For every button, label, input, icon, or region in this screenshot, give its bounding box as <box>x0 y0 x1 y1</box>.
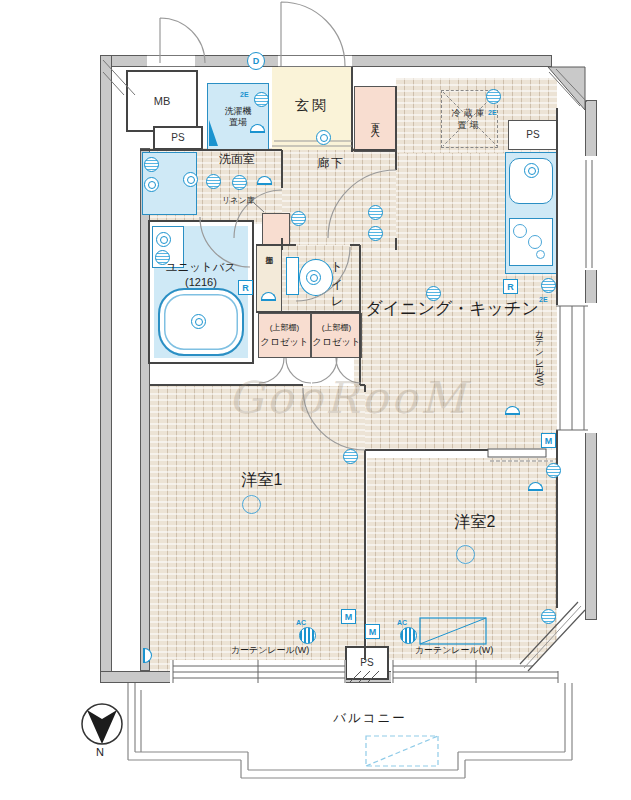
room2-ac-tag: AC <box>397 619 407 626</box>
entrance-threshold <box>278 55 352 67</box>
bath-faucet-symbol <box>156 232 171 247</box>
bottom-window-1 <box>170 660 346 683</box>
sink-faucet-symbol <box>524 163 539 178</box>
washer-faucet-symbol <box>254 92 269 107</box>
curtain-rail-room2-label: カーテンレール(W) <box>402 644 506 656</box>
burner-2 <box>528 235 542 249</box>
washroom-switch-2 <box>232 175 247 190</box>
entrance-label: 玄関 <box>272 95 352 115</box>
room1-wall-switch <box>343 449 358 464</box>
entrance-light-symbol <box>316 130 331 145</box>
kitchen-window-gap <box>583 156 597 270</box>
bottom-window-2 <box>391 660 559 683</box>
pipe-space-bottom: PS <box>345 646 389 680</box>
bath-shower-symbol <box>155 250 170 265</box>
linen-cabinet <box>262 213 290 245</box>
door-badge: D <box>247 52 265 70</box>
washer-label-2: 置場 <box>229 117 247 127</box>
toilet-wall-symbol <box>291 211 306 226</box>
north-label: N <box>96 746 104 759</box>
dk-label: ダイニング・キッチン <box>366 298 538 320</box>
room2-wall-switch <box>546 463 561 478</box>
shoe-box-label: 下足入 <box>370 116 380 122</box>
pipe-space-top-left: PS <box>153 126 203 150</box>
compass-icon <box>82 704 122 744</box>
shoe-box: 下足入 <box>354 86 396 152</box>
ps-label: PS <box>171 132 184 144</box>
burner-3 <box>536 250 545 259</box>
room2-outlet-top <box>528 482 543 491</box>
closet-2: (上部棚) クロゼット <box>311 313 362 358</box>
closet-2-label: クロゼット <box>312 337 361 348</box>
washer-outlet-symbol <box>250 124 265 133</box>
shelf-heater-symbol <box>261 292 276 301</box>
mb-door-threshold <box>147 55 195 67</box>
washer-drain-symbol <box>209 120 218 146</box>
fridge-outlet-tag: 2E <box>488 109 497 116</box>
room1-floor <box>150 386 365 671</box>
toilet-drain-symbol <box>306 270 321 285</box>
burner-1 <box>513 224 527 238</box>
bath-r-badge: R <box>238 280 253 295</box>
curtain-rail-room1-label: カーテンレール(W) <box>218 644 322 656</box>
tub-drain-symbol <box>191 314 206 329</box>
meter-box-label: MB <box>154 95 171 108</box>
ps-bottom-label: PS <box>360 657 373 669</box>
room1-ac-tag: AC <box>296 619 306 626</box>
closet-1-label: クロゼット <box>260 337 309 348</box>
washer-label-1: 洗濯機 <box>225 106 252 116</box>
dk-m-badge: M <box>541 433 556 448</box>
room2-ac-symbol <box>400 627 417 644</box>
upper-shelf-cabinet: 上部棚 <box>256 245 282 312</box>
room1-light-symbol <box>242 495 261 514</box>
kitchen-outlet-symbol <box>541 278 556 293</box>
pipe-space-right: PS <box>508 120 558 150</box>
toilet-tank <box>286 257 299 295</box>
meter-box: MB <box>126 70 198 132</box>
kitchen-stove <box>509 218 553 266</box>
washer-outlet-tag: 2E <box>240 91 249 98</box>
room1-ac-symbol <box>299 627 316 644</box>
washroom-label: 洗面室 <box>192 152 282 168</box>
closet-1: (上部棚) クロゼット <box>258 313 311 358</box>
fridge-label-2: 置場 <box>458 120 482 130</box>
dk-r-badge: R <box>503 279 518 294</box>
bath-size-label: (1216) <box>152 276 250 289</box>
room2-light-symbol <box>456 545 475 564</box>
fridge-outlet-symbol <box>486 89 501 104</box>
right-window-gap <box>583 303 597 433</box>
closet-2-upper: (上部棚) <box>322 323 351 332</box>
hallway-label: 廊下 <box>286 156 376 172</box>
linen-label: リネン庫 <box>222 196 255 205</box>
closet-1-upper: (上部棚) <box>270 323 299 332</box>
room2-bottom-switch <box>541 609 556 624</box>
room2-m-badge: M <box>365 624 380 639</box>
hallway-switch-1 <box>368 205 383 220</box>
vanity-bowl-symbol <box>183 172 198 187</box>
ps-right-label: PS <box>526 129 539 141</box>
watermark: GooRooM <box>228 372 468 423</box>
room1-m-badge: M <box>341 609 356 624</box>
dk-ceiling-symbol <box>426 286 441 301</box>
washroom-switch-1 <box>206 174 221 189</box>
balcony-label: バルコニー <box>322 710 418 726</box>
wall-left <box>100 55 112 683</box>
vanity-faucet-symbol <box>144 177 159 192</box>
vanity-light-symbol <box>144 157 159 172</box>
room2-label: 洋室2 <box>433 512 517 532</box>
hallway-switch-2 <box>368 226 383 241</box>
toilet-label: トイレ <box>329 252 343 305</box>
kitchen-outlet-tag: 2E <box>539 296 548 303</box>
floor-plan: MB PS 洗濯機 置場 下足入 上部棚 (上部棚) クロゼット (上部棚) ク… <box>0 0 631 800</box>
washroom-outlet <box>257 176 272 185</box>
curtain-rail-right-label: カーテンレール(W) <box>534 324 544 386</box>
fridge-label-1: 冷蔵庫 <box>452 108 488 118</box>
dk-outlet-symbol <box>505 406 520 415</box>
room1-label: 洋室1 <box>220 470 304 490</box>
